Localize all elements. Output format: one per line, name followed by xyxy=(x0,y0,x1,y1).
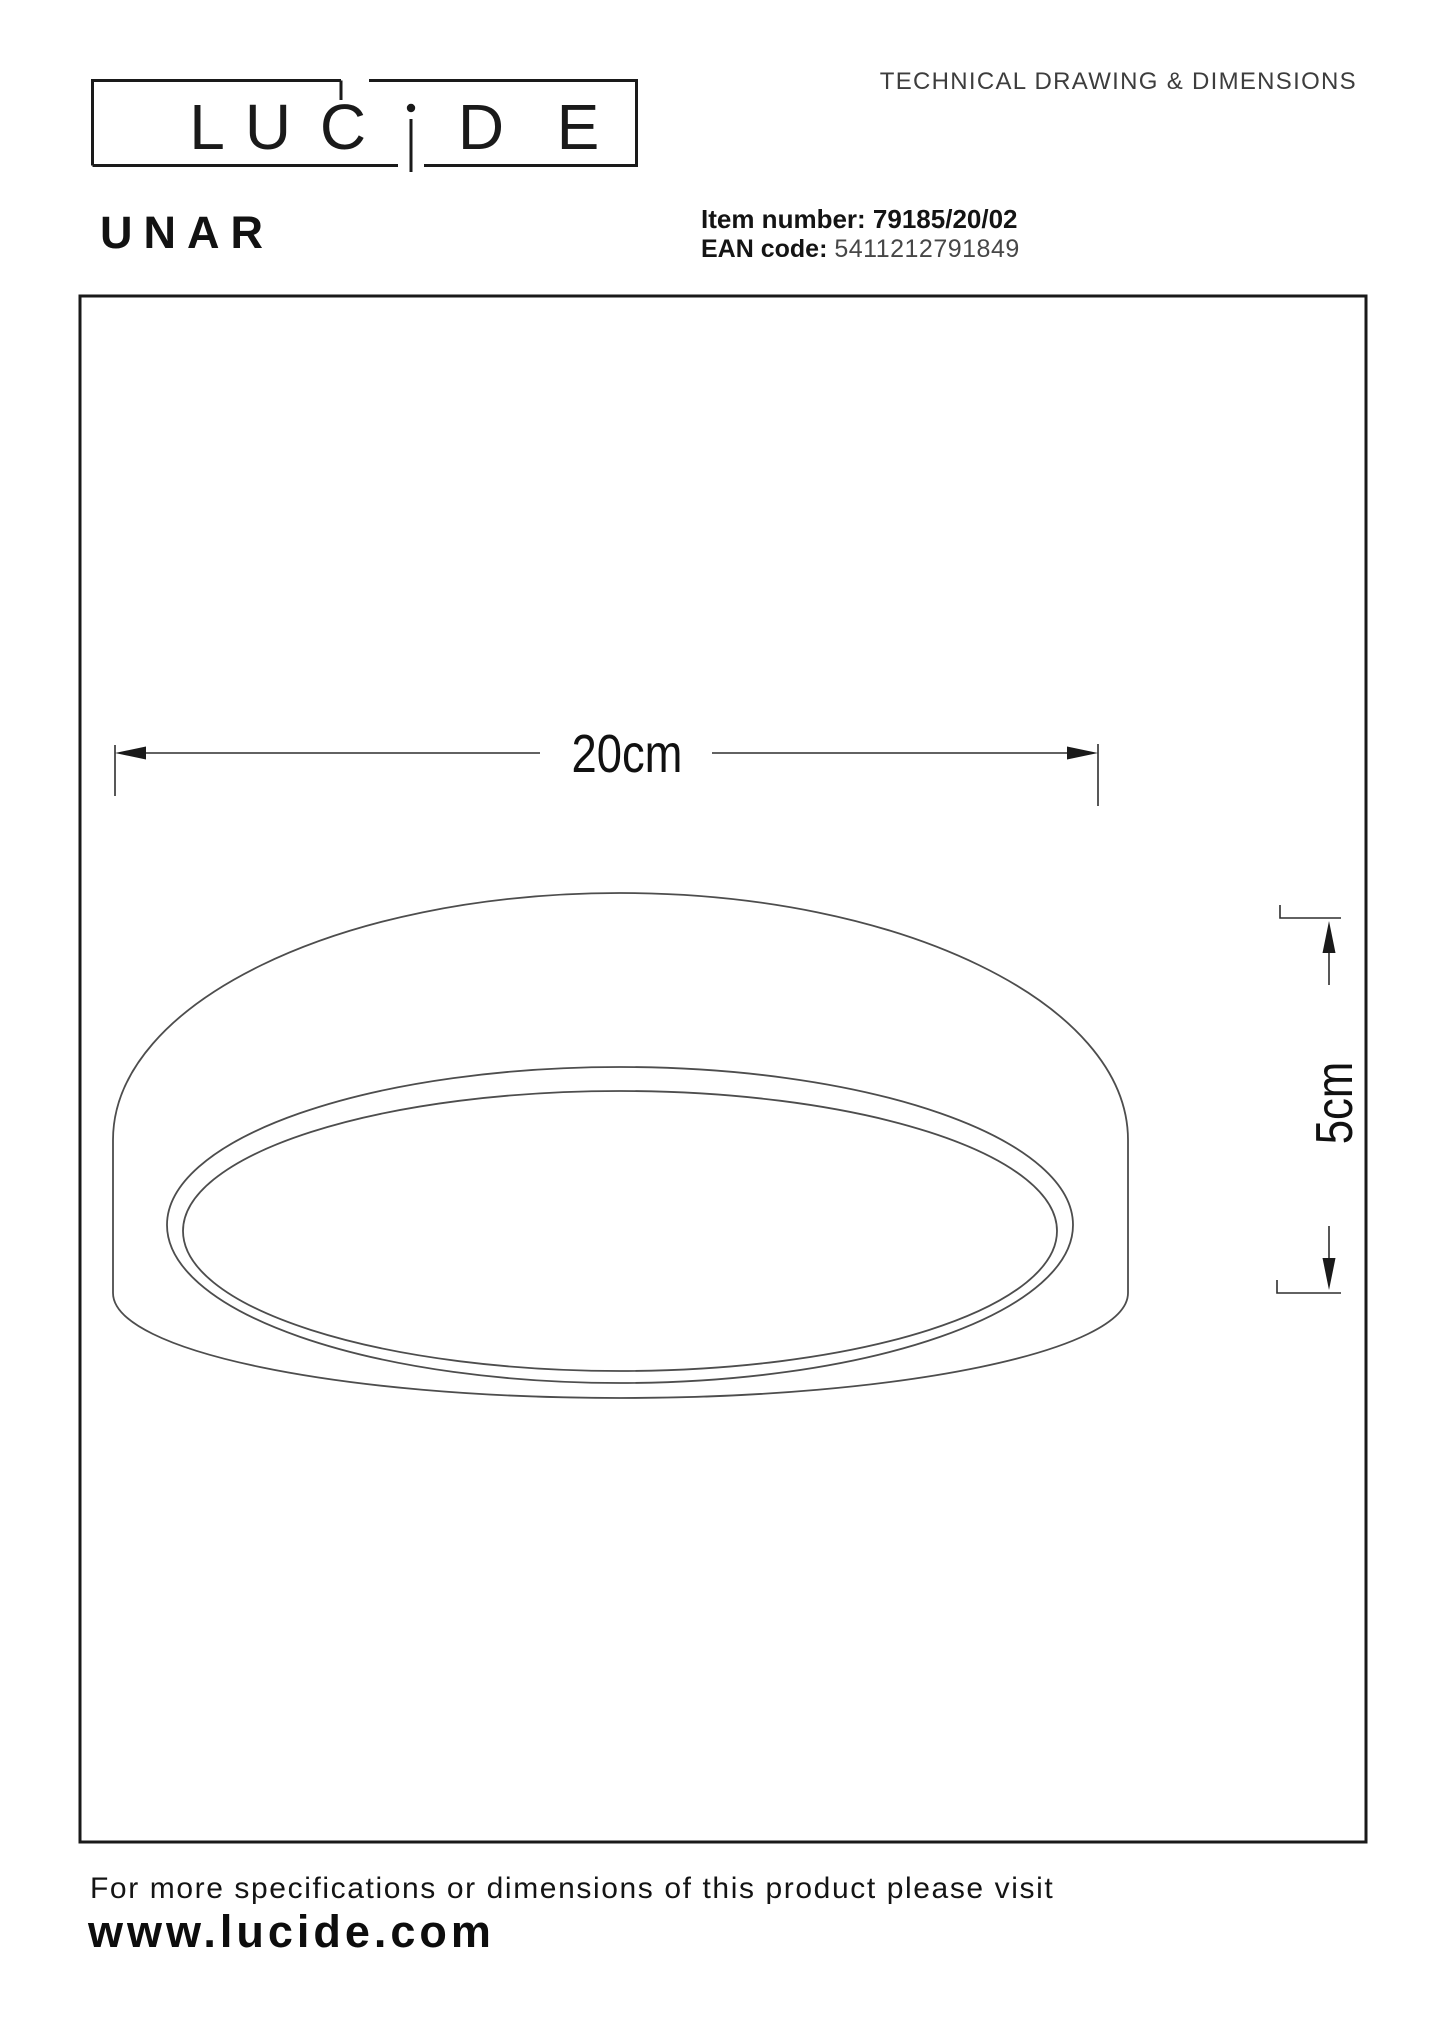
drawing-frame xyxy=(80,296,1366,1842)
footer-website: www.lucide.com xyxy=(88,1906,495,1958)
height-label: 5cm xyxy=(1307,1062,1364,1145)
height-label-group: 5cm xyxy=(1307,1062,1364,1145)
height-tick-bottom xyxy=(1277,1280,1341,1293)
rim-inner-edge xyxy=(167,1067,1073,1383)
diameter-arrow-right xyxy=(1067,747,1098,760)
height-arrow-up xyxy=(1323,921,1336,953)
height-arrow-down xyxy=(1323,1258,1336,1290)
cylinder-body xyxy=(113,893,1128,1398)
technical-drawing: 20cm 5cm xyxy=(0,0,1445,2044)
diameter-label-group: 20cm xyxy=(572,723,683,784)
height-tick-top xyxy=(1280,905,1341,918)
spec-sheet-page: { "header": { "technical_label": "TECHNI… xyxy=(0,0,1445,2044)
diffuser-edge xyxy=(183,1091,1057,1371)
footer-note: For more specifications or dimensions of… xyxy=(90,1872,1054,1906)
diameter-label: 20cm xyxy=(572,723,683,784)
diameter-arrow-left xyxy=(115,747,146,760)
